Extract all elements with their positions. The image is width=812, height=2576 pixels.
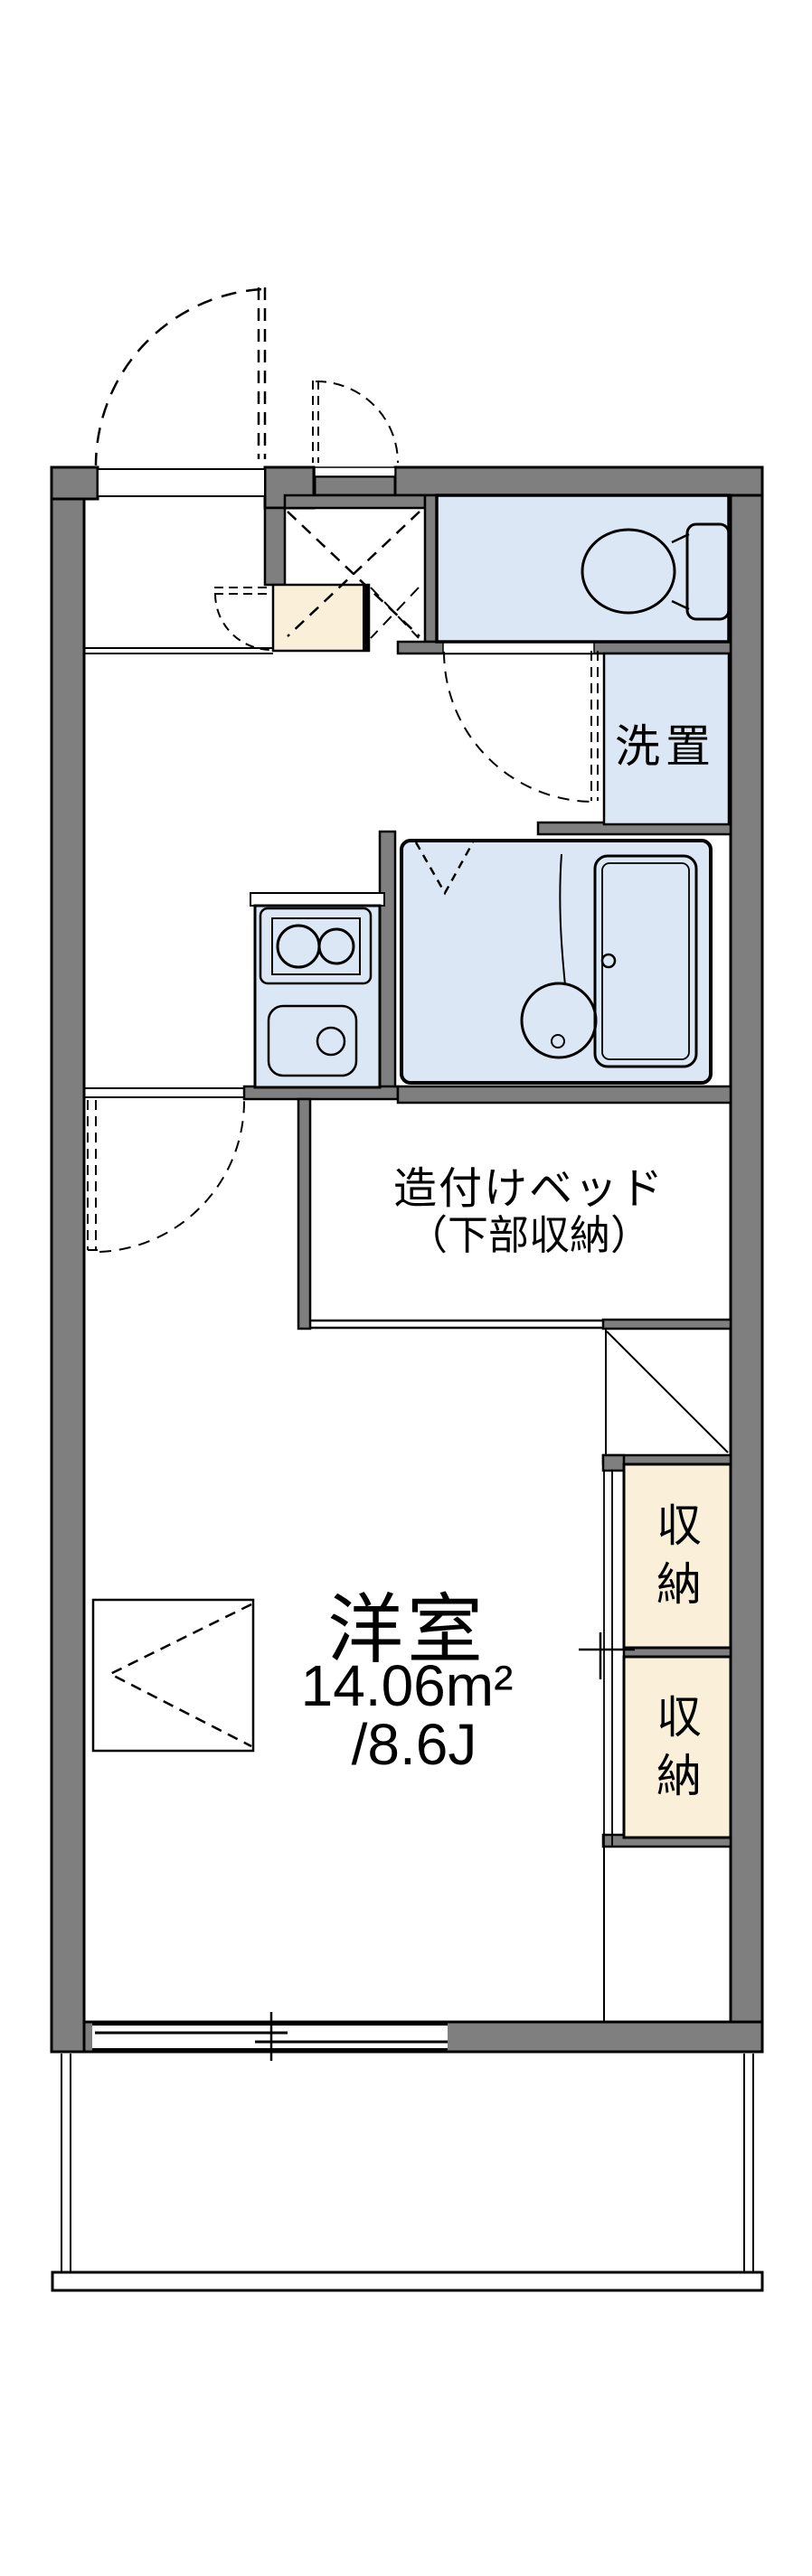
wall-right: [731, 495, 762, 2052]
sliding-window: [92, 2012, 448, 2061]
toilet-door-opening: [443, 642, 594, 653]
kitchen-counter: [250, 893, 384, 906]
bedroom-door-leaf: [88, 1100, 101, 1250]
closet-track-lines: [604, 1471, 612, 1847]
shoe-door-arc: [215, 594, 271, 650]
window-opening: [92, 2026, 448, 2049]
bedroom-door-arc: [99, 1101, 244, 1252]
bedroom-doorway-edge: [84, 1088, 244, 1097]
shoe-cabinet-side: [363, 585, 369, 651]
built-in-bed-sublabel: （下部収納）: [335, 1202, 723, 1261]
balcony-rail-right: [744, 2054, 753, 2272]
laundry-label: 洗置: [597, 710, 734, 776]
room-area-sqm-label: 14.06m²: [271, 1652, 543, 1719]
genkan-step-edge: [84, 648, 273, 653]
wall-top-meter-under: [315, 476, 395, 495]
kitchen-unit: [255, 906, 380, 1087]
shoe-door-leaf: [214, 588, 270, 594]
wall-bed-top: [398, 1086, 731, 1103]
closet-diagonal: [607, 1331, 728, 1453]
balcony-rail-left: [61, 2054, 71, 2272]
toilet-door-arc: [444, 652, 594, 802]
wall-shaft-pillar: [265, 508, 285, 585]
toilet-door-swing: [444, 651, 598, 802]
shoe-cabinet-door-swing: [214, 588, 271, 650]
balcony: [52, 2054, 762, 2290]
meter-door-band: [315, 467, 395, 476]
wall-kitchen-bath-divider: [380, 832, 395, 1087]
balcony-railing-bottom: [52, 2272, 762, 2290]
front-door-slab: [98, 469, 265, 496]
meter-door-swing: [313, 381, 398, 463]
wall-left: [52, 467, 84, 2052]
storage-lower-label: 収納: [653, 1688, 705, 1806]
wall-top-right: [395, 467, 762, 495]
bedroom-door-swing: [88, 1100, 244, 1252]
wall-bed-left: [298, 1099, 310, 1329]
wall-bed-bottom-right: [603, 1320, 731, 1329]
shoe-cabinet: [273, 585, 369, 651]
floor-plan-drawing: [0, 0, 812, 2576]
storage-upper-label: 収納: [653, 1497, 705, 1614]
meter-door-arc: [316, 381, 398, 463]
room-area-tatami-label: /8.6J: [279, 1711, 550, 1778]
wall-closet-top-notch: [603, 1455, 624, 1471]
front-door-leaf: [259, 287, 265, 459]
wall-top-left-block: [52, 467, 98, 499]
floor-plan: 洗置 造付けベッド （下部収納） 収納 収納 洋室 14.06m² /8.6J: [0, 0, 812, 2576]
front-door-arc: [96, 289, 261, 465]
wall-toilet-left: [425, 495, 437, 642]
meter-door-leaf: [313, 381, 318, 463]
window-counter-box: [93, 1600, 253, 1751]
front-door-swing: [96, 287, 265, 465]
wall-shaft-top: [285, 495, 425, 508]
bed-front-edge: [310, 1321, 603, 1328]
